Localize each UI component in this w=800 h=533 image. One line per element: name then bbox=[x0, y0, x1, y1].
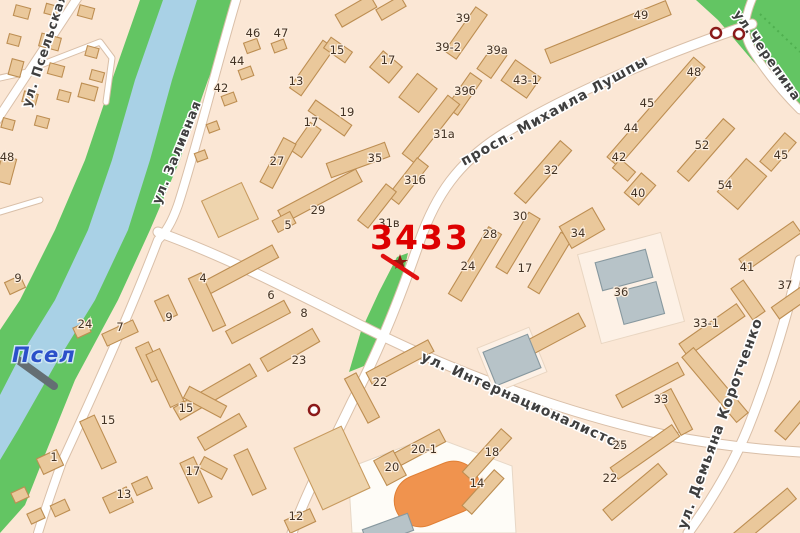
house-number-label: 14 bbox=[470, 476, 485, 490]
house-number-label: 42 bbox=[214, 81, 229, 95]
house-number-label: 48 bbox=[687, 65, 702, 79]
house-number-label: 12 bbox=[289, 509, 304, 523]
house-number-label: 17 bbox=[381, 53, 396, 67]
house-number-label: 39а bbox=[486, 43, 508, 57]
house-number-label: 15 bbox=[179, 401, 194, 415]
house-number-label: 52 bbox=[695, 138, 710, 152]
house-number-label: 35 bbox=[368, 151, 383, 165]
river-name-label: Псел bbox=[12, 343, 76, 367]
map-canvas[interactable]: Псел ул. Псельскаяул. Заливнаяпросп. Мих… bbox=[0, 0, 800, 533]
house-number-label: 25 bbox=[613, 438, 628, 452]
house-number-label: 39-2 bbox=[435, 40, 461, 54]
house-number-label: 33 bbox=[654, 392, 669, 406]
house-number-label: 30 bbox=[513, 209, 528, 223]
house-number-label: 23 bbox=[292, 353, 307, 367]
house-number-label: 54 bbox=[718, 178, 733, 192]
house-number-label: 39 bbox=[456, 11, 471, 25]
house-number-label: 31б bbox=[404, 173, 426, 187]
house-number-label: 33-1 bbox=[693, 316, 719, 330]
house-number-label: 43-1 bbox=[513, 73, 539, 87]
house-number-label: 34 bbox=[571, 226, 586, 240]
house-number-label: 40 bbox=[631, 186, 646, 200]
house-number-label: 27 bbox=[270, 154, 285, 168]
house-number-label: 9 bbox=[14, 271, 21, 285]
house-number-label: 15 bbox=[101, 413, 116, 427]
house-number-label: 28 bbox=[483, 227, 498, 241]
house-number-label: 44 bbox=[624, 121, 639, 135]
house-number-label: 44 bbox=[230, 54, 245, 68]
object-id-label: 3433 bbox=[370, 221, 470, 254]
house-number-label: 8 bbox=[300, 306, 307, 320]
house-number-label: 22 bbox=[603, 471, 618, 485]
house-number-label: 32 bbox=[544, 163, 559, 177]
house-number-label: 39б bbox=[454, 84, 476, 98]
house-number-label: 15 bbox=[330, 43, 345, 57]
house-number-label: 37 bbox=[778, 278, 793, 292]
house-number-label: 4 bbox=[199, 271, 206, 285]
house-number-label: 31а bbox=[433, 127, 455, 141]
house-number-label: 24 bbox=[78, 317, 93, 331]
house-number-label: 17 bbox=[304, 115, 319, 129]
house-number-label: 42 bbox=[612, 150, 627, 164]
house-number-label: 36 bbox=[614, 285, 629, 299]
house-number-label: 49 bbox=[634, 8, 649, 22]
house-number-label: 1 bbox=[50, 450, 57, 464]
house-number-label: 17 bbox=[186, 464, 201, 478]
house-number-label: 29 bbox=[311, 203, 326, 217]
house-number-label: 47 bbox=[274, 26, 289, 40]
house-number-label: 22 bbox=[373, 375, 388, 389]
house-number-label: 7 bbox=[116, 320, 123, 334]
house-number-label: 24 bbox=[461, 259, 476, 273]
house-number-label: 17 bbox=[518, 261, 533, 275]
road-junction-marker bbox=[711, 28, 721, 38]
house-number-label: 45 bbox=[774, 148, 789, 162]
house-number-label: 20 bbox=[385, 460, 400, 474]
house-number-label: 41 bbox=[740, 260, 755, 274]
road-junction-marker bbox=[734, 29, 744, 39]
house-number-label: 6 bbox=[267, 288, 274, 302]
house-number-label: 20-1 bbox=[411, 442, 437, 456]
house-number-label: 45 bbox=[640, 96, 655, 110]
house-number-label: 46 bbox=[246, 26, 261, 40]
house-number-label: 18 bbox=[485, 445, 500, 459]
road-junction-marker bbox=[309, 405, 319, 415]
house-number-label: 5 bbox=[284, 218, 291, 232]
house-number-label: 13 bbox=[117, 487, 132, 501]
house-number-label: 19 bbox=[340, 105, 355, 119]
house-number-label: 13 bbox=[289, 74, 304, 88]
house-number-label: 48 bbox=[0, 150, 14, 164]
house-number-label: 9 bbox=[165, 310, 172, 324]
